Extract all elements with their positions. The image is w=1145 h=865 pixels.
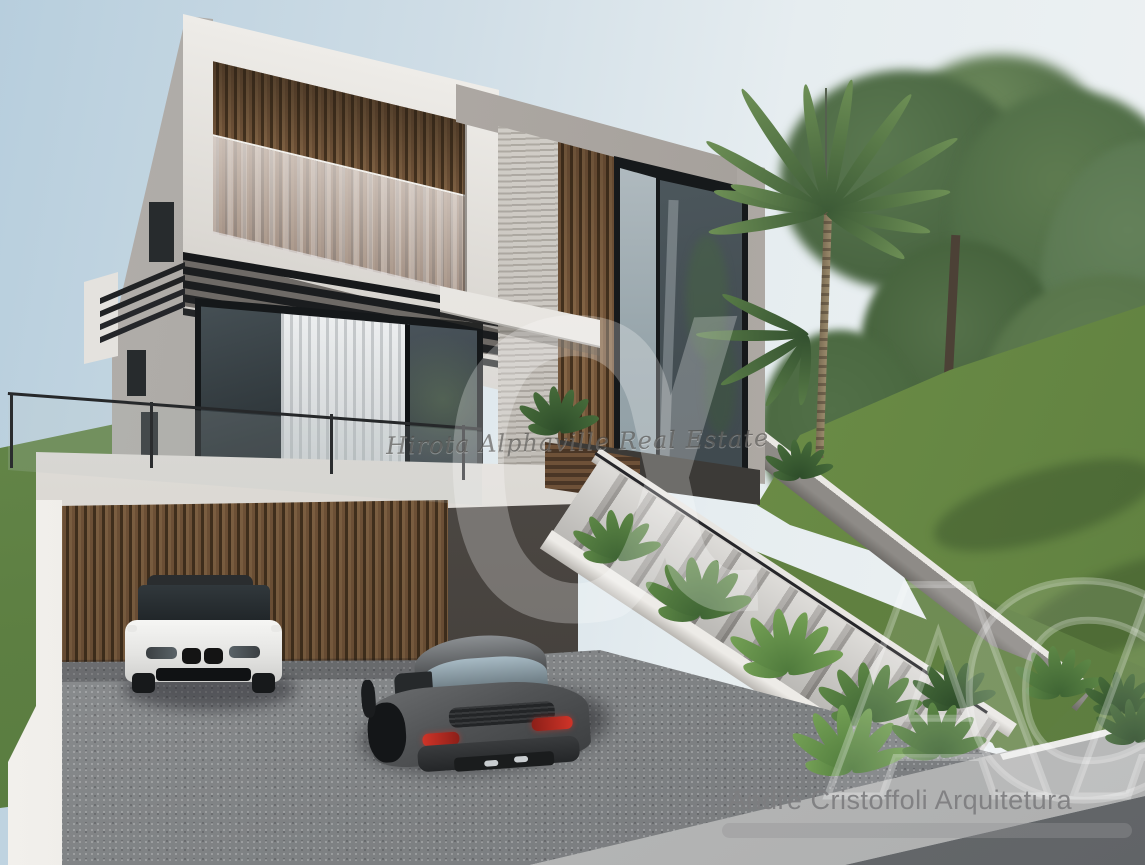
car-porsche-gray <box>357 622 602 783</box>
bmw-kidney-grille <box>204 648 223 664</box>
architectural-render-scene: α ACA Hirota Alphaville Real Estate Andr… <box>0 0 1145 865</box>
bmw-headlight <box>229 646 260 658</box>
bmw-headlight <box>146 647 177 659</box>
car-bmw-white <box>125 575 285 697</box>
window-slit <box>149 202 174 262</box>
bmw-wheel <box>132 673 155 693</box>
bmw-lower-intake <box>156 668 251 681</box>
porsche-exhaust <box>484 760 498 767</box>
bmw-mirror <box>271 625 281 632</box>
window-slit <box>127 350 146 396</box>
bmw-wheel <box>252 673 275 693</box>
bmw-kidney-grille <box>182 648 201 664</box>
porsche-front-wheel <box>360 679 377 718</box>
porsche-exhaust <box>514 756 528 763</box>
bmw-mirror <box>127 625 137 632</box>
